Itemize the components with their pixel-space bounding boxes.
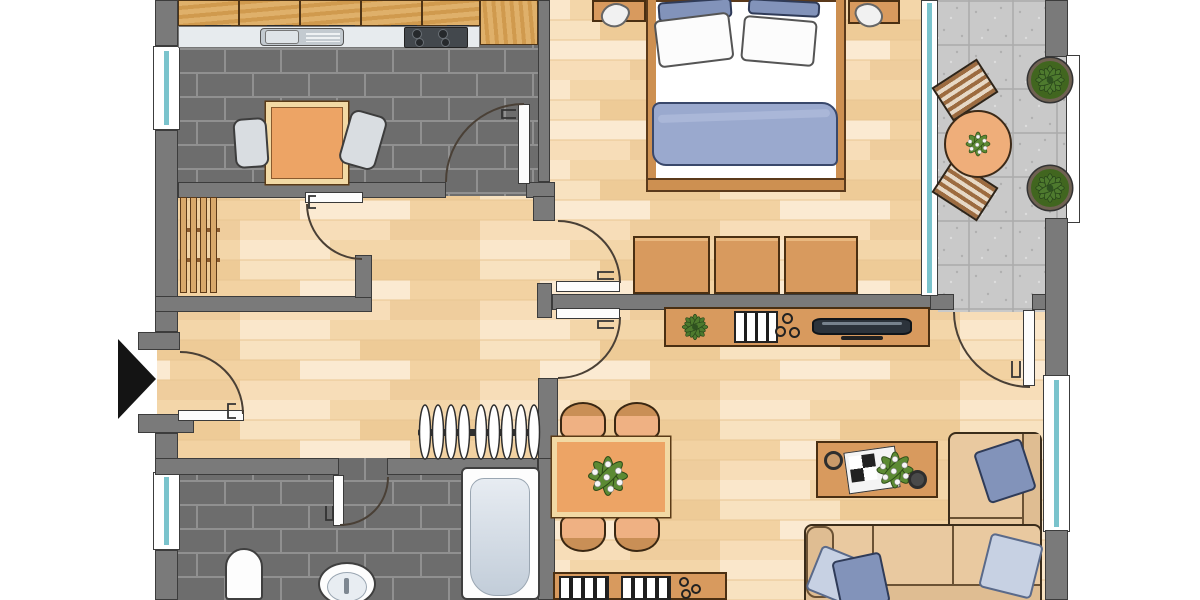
hanger-8 (516, 405, 527, 459)
dining-table-plant-icon (589, 457, 628, 496)
hanger-2 (433, 405, 444, 459)
bathroom-door-handle (326, 506, 333, 520)
balcony-pot-plant-bottom-icon (1036, 174, 1065, 203)
hanger-9 (529, 405, 540, 459)
entrance-door-handle (228, 404, 236, 418)
coat-hangers (420, 405, 540, 459)
hanger-7 (502, 405, 513, 459)
kitchen-door-handle (502, 110, 516, 118)
balcony-pot-plant-top-icon (1036, 66, 1065, 95)
kitchen-door-arc (446, 104, 524, 182)
hanger-3 (446, 405, 457, 459)
symbol-layer (0, 0, 1200, 600)
bedroom-door-handle (598, 272, 614, 279)
living-room-door-arc (558, 317, 620, 378)
sideboard-plant-icon (682, 314, 708, 340)
balcony-door-handle (1012, 361, 1020, 377)
hanger-4 (459, 405, 470, 459)
living-room-door-handle (598, 321, 614, 328)
entrance-arrow-icon (118, 339, 156, 419)
floor-plan (0, 0, 1200, 600)
hanger-5 (476, 405, 487, 459)
coffee-table-plant-icon (877, 452, 913, 488)
balcony-door-arc (954, 312, 1030, 387)
bedroom-door-arc (558, 221, 620, 283)
balcony-table-plant-icon (966, 132, 990, 156)
bathroom-door-arc (340, 477, 388, 525)
storage-door-arc (307, 204, 362, 259)
hanger-6 (489, 405, 500, 459)
storage-door-handle (309, 196, 316, 208)
hanger-1 (420, 405, 431, 459)
